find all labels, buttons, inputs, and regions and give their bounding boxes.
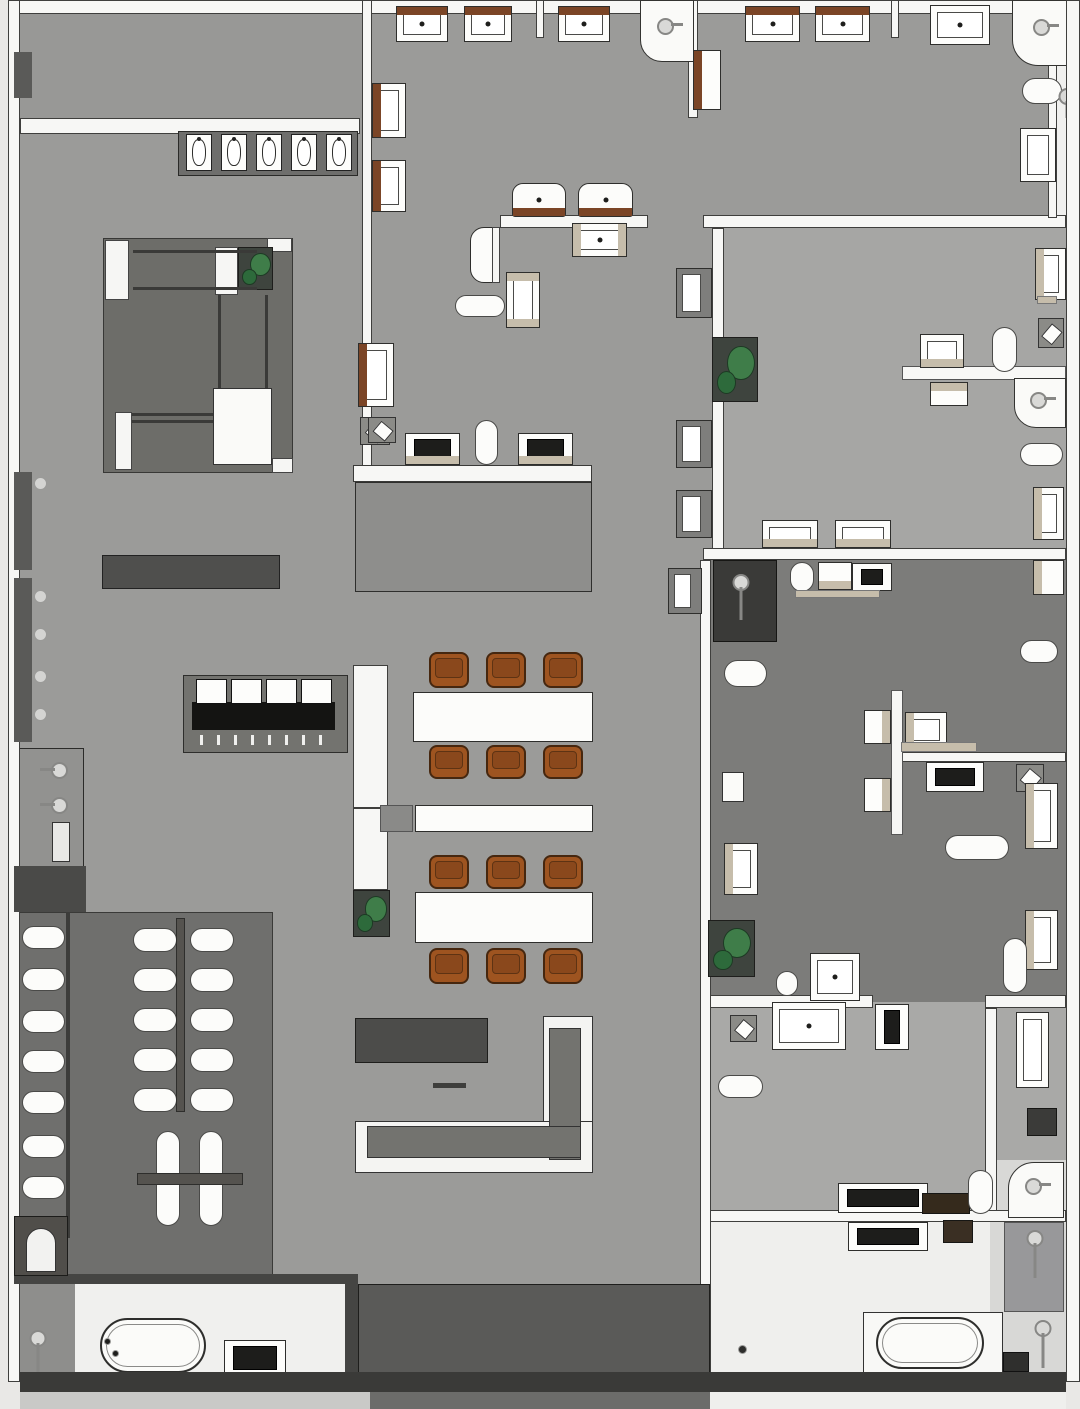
plant-leaf xyxy=(713,950,733,971)
dark-top xyxy=(861,569,883,585)
spa-bowl xyxy=(1038,318,1064,348)
floor-bottom-right xyxy=(710,1392,1066,1409)
treatment-bed xyxy=(1025,783,1058,849)
lounger xyxy=(22,1176,65,1199)
stool-dark xyxy=(943,1220,973,1243)
dining-chair xyxy=(429,855,469,889)
accent-bar xyxy=(513,208,565,216)
tap xyxy=(197,137,201,141)
cushion xyxy=(492,658,520,678)
accent-bar xyxy=(694,51,702,109)
styling-station xyxy=(358,343,394,407)
chair xyxy=(682,496,701,532)
console-table xyxy=(355,1018,488,1063)
bed xyxy=(1020,443,1063,466)
lounger xyxy=(190,928,234,952)
styling-station xyxy=(372,160,406,212)
wall-innerroom-right xyxy=(898,752,1066,762)
wall-bath-divider xyxy=(345,1283,358,1378)
accent-bar xyxy=(819,581,851,589)
column-left-1 xyxy=(14,52,32,98)
basin xyxy=(332,139,346,166)
accent-bar xyxy=(465,7,511,15)
desk-chair xyxy=(930,382,968,406)
knob xyxy=(807,1024,812,1029)
lounger xyxy=(22,1091,65,1114)
treatment-bed xyxy=(1033,560,1064,595)
sofa-module xyxy=(105,240,129,300)
accent-bar xyxy=(559,7,609,15)
dining-chair xyxy=(486,745,526,779)
lounger xyxy=(190,1088,234,1112)
vanity xyxy=(848,1222,928,1251)
dining-chair xyxy=(543,948,583,984)
fixture-head xyxy=(1030,392,1047,409)
diamond-glyph xyxy=(372,420,393,441)
chair xyxy=(674,574,691,608)
cushion xyxy=(435,861,463,879)
basin xyxy=(297,139,311,166)
fixture-arm xyxy=(1042,1333,1045,1368)
accent-bar xyxy=(1026,911,1034,969)
bathtub xyxy=(100,1318,206,1373)
accent-bar xyxy=(882,711,890,743)
mirror xyxy=(1023,1019,1042,1081)
mirror xyxy=(927,341,957,361)
accent-bar xyxy=(1036,249,1044,299)
fixture-arm xyxy=(40,803,55,806)
fixture-arm xyxy=(671,23,683,26)
control-panel xyxy=(52,822,70,862)
wall-station xyxy=(676,268,712,318)
wash-chair xyxy=(578,183,633,217)
lounge-chair xyxy=(724,843,758,895)
mirror xyxy=(1042,255,1059,293)
reception-counter xyxy=(102,555,280,589)
mat-dark xyxy=(1003,1352,1029,1372)
sink-unit xyxy=(506,272,540,328)
accent-bar xyxy=(1034,561,1042,594)
knob xyxy=(770,22,775,27)
shower-head xyxy=(40,795,68,817)
wall-divider-top-1 xyxy=(536,0,544,38)
shower-head xyxy=(728,574,754,620)
bed xyxy=(992,327,1017,372)
lounger xyxy=(190,1048,234,1072)
accent-bar xyxy=(816,7,869,15)
dining-chair xyxy=(543,855,583,889)
wash-chair xyxy=(512,183,566,217)
desk-station xyxy=(518,433,573,465)
mirror xyxy=(1032,917,1051,963)
dark-top xyxy=(857,1228,919,1245)
plant-box xyxy=(238,247,273,290)
toilet xyxy=(1014,378,1066,428)
mirror xyxy=(912,719,940,741)
lounger-rail xyxy=(176,918,185,1112)
lounger xyxy=(133,968,177,992)
coffee-table xyxy=(213,388,272,465)
wall-lamp xyxy=(34,708,47,721)
stage-platform xyxy=(358,1284,710,1376)
bed xyxy=(790,562,814,592)
chair xyxy=(682,274,701,312)
accent-bar xyxy=(882,779,890,811)
sofa-back-line xyxy=(133,287,257,290)
manicure-seat xyxy=(301,679,332,704)
accent-bar xyxy=(763,539,817,547)
manicure-counter xyxy=(192,702,335,730)
treatment-bed xyxy=(1033,487,1064,540)
knob xyxy=(537,198,542,203)
styling-station xyxy=(464,6,512,42)
lounger xyxy=(133,1008,177,1032)
mirror xyxy=(365,350,387,400)
desk-divider xyxy=(891,690,903,835)
treatment-bed xyxy=(1025,910,1058,970)
basin xyxy=(262,139,276,166)
lounger xyxy=(22,1135,65,1158)
treatment-bed xyxy=(772,1002,846,1050)
desk-chair xyxy=(835,520,891,548)
cabinet xyxy=(875,1004,909,1050)
wall-divider-top-2 xyxy=(891,0,899,38)
sofa-module xyxy=(115,412,132,470)
desk-station xyxy=(405,433,460,465)
dark-top xyxy=(884,1010,900,1044)
knob xyxy=(833,975,838,980)
mirror-cabinet xyxy=(930,5,990,45)
dark-top xyxy=(935,768,975,786)
basin xyxy=(227,139,241,166)
knob xyxy=(486,22,491,27)
sofa-back-line xyxy=(133,250,257,253)
desk-chair xyxy=(762,520,818,548)
sofa-module xyxy=(272,458,293,473)
knob xyxy=(597,238,602,243)
plant-leaf xyxy=(357,914,373,931)
accent-bar xyxy=(397,7,447,15)
dining-chair xyxy=(486,948,526,984)
cabinet xyxy=(1020,128,1056,182)
fixture-head xyxy=(1025,1178,1042,1195)
fixture-arm xyxy=(1047,24,1059,27)
styling-station xyxy=(372,83,406,138)
knob xyxy=(582,22,587,27)
lounger-rail xyxy=(137,1173,243,1185)
tap xyxy=(337,137,341,141)
pedicure-sink xyxy=(291,134,317,171)
tap xyxy=(267,137,271,141)
lounger xyxy=(22,1050,65,1073)
accent-bar xyxy=(725,844,733,894)
bed xyxy=(724,660,767,687)
mirror xyxy=(731,850,751,888)
side-table-dark xyxy=(1027,1108,1057,1136)
door-arch xyxy=(26,1228,56,1272)
fixture-arm xyxy=(40,768,55,771)
styling-station xyxy=(558,6,610,42)
wall-chevron-top-b xyxy=(985,995,1066,1008)
bar-counter-horizontal xyxy=(367,1126,581,1158)
mirror xyxy=(1032,790,1051,842)
cushion xyxy=(435,954,463,974)
wall-lamp xyxy=(34,590,47,603)
wall-woodroom-bottom xyxy=(703,548,1066,560)
cabinet-small xyxy=(722,772,744,802)
column-left-3 xyxy=(14,578,32,742)
mirror xyxy=(1040,494,1057,533)
vanity xyxy=(838,1183,928,1213)
shower-head xyxy=(40,760,68,782)
fixture-arm xyxy=(1044,397,1056,400)
accent-bar xyxy=(406,456,459,464)
pedicure-sink xyxy=(256,134,282,171)
platform-room xyxy=(355,482,592,592)
bed xyxy=(968,1170,993,1214)
cushion xyxy=(492,751,520,769)
basin xyxy=(192,139,206,166)
plant-box xyxy=(353,890,390,937)
towel-roll xyxy=(455,295,505,317)
accent-bar xyxy=(507,273,539,281)
dining-table-narrow xyxy=(415,805,593,832)
desk xyxy=(852,563,892,591)
lounger xyxy=(22,926,65,949)
accent-bar xyxy=(746,7,799,15)
manicure-seat xyxy=(266,679,297,704)
cushion xyxy=(435,751,463,769)
drain xyxy=(738,1345,747,1354)
wall-lamp xyxy=(34,628,47,641)
bed xyxy=(718,1075,763,1098)
styling-station xyxy=(815,6,870,42)
cushion xyxy=(549,658,577,678)
dining-table xyxy=(413,692,593,742)
shower-head xyxy=(26,1330,50,1376)
tap xyxy=(302,137,306,141)
fixture-head xyxy=(1033,19,1050,36)
desk-surface xyxy=(901,742,977,752)
desk-chair xyxy=(864,778,891,812)
knob xyxy=(420,22,425,27)
dining-chair xyxy=(429,745,469,779)
treatment-bed xyxy=(1035,248,1066,300)
floor-bottom-left xyxy=(20,1392,370,1409)
accent-bar xyxy=(519,456,572,464)
shower-head xyxy=(1030,1320,1056,1368)
sink-unit xyxy=(572,223,627,257)
desk-chair xyxy=(920,334,964,368)
accent-bar xyxy=(931,383,967,391)
manicure-seat xyxy=(196,679,227,704)
tap xyxy=(232,137,236,141)
stool-dark xyxy=(922,1193,970,1214)
floor-plan-canvas xyxy=(0,0,1080,1409)
bed xyxy=(1020,640,1058,663)
knob xyxy=(603,198,608,203)
wall-lamp xyxy=(34,670,47,683)
bed xyxy=(945,835,1009,860)
plant-box xyxy=(712,337,758,402)
dining-table xyxy=(415,892,593,943)
stool-row xyxy=(200,735,332,745)
lounger xyxy=(22,968,65,991)
cushion xyxy=(549,954,577,974)
fixture-arm xyxy=(1039,1183,1051,1186)
chair xyxy=(682,426,701,462)
dining-chair xyxy=(486,652,526,688)
mat-line xyxy=(433,1083,466,1088)
desk-chair xyxy=(864,710,891,744)
cushion xyxy=(435,658,463,678)
tap xyxy=(112,1350,119,1357)
wall-station xyxy=(668,568,702,614)
mirror xyxy=(379,167,399,205)
cushion xyxy=(492,861,520,879)
wall-lamp xyxy=(34,477,47,490)
bed xyxy=(776,971,798,996)
lounger xyxy=(190,1008,234,1032)
dining-chair xyxy=(486,855,526,889)
treatment-bed xyxy=(1016,1012,1049,1088)
wall-station xyxy=(676,490,712,538)
cushion xyxy=(549,861,577,879)
counter-dining-mid xyxy=(380,805,413,832)
floor-wood-room xyxy=(712,222,1066,558)
spa-bowl xyxy=(730,1015,757,1042)
diamond-glyph xyxy=(1041,323,1063,345)
accent-bar xyxy=(618,224,626,256)
platform-shelf xyxy=(353,465,592,482)
plant-leaf xyxy=(717,371,737,394)
accent-bar xyxy=(836,539,890,547)
accent-bar xyxy=(373,84,381,137)
fixture-arm xyxy=(740,587,743,620)
dark-top xyxy=(847,1189,919,1207)
manicure-seat xyxy=(231,679,262,704)
towel-box xyxy=(368,417,396,443)
accent-bar xyxy=(921,359,963,367)
wall-right xyxy=(1066,0,1080,1382)
wall-top xyxy=(8,0,1080,14)
lounger xyxy=(133,1048,177,1072)
column-left-2 xyxy=(14,472,32,570)
diamond-glyph xyxy=(734,1019,755,1040)
vanity xyxy=(224,1340,286,1376)
bathtub xyxy=(876,1317,984,1369)
dark-top xyxy=(233,1346,277,1370)
tap xyxy=(104,1338,111,1345)
plant-box xyxy=(708,920,755,977)
styling-station xyxy=(745,6,800,42)
accent-bar xyxy=(1034,488,1042,539)
lounger xyxy=(190,968,234,992)
cushion xyxy=(549,751,577,769)
fixture-arm xyxy=(1034,1243,1037,1278)
mirror xyxy=(1027,135,1049,175)
floor-bottom-center xyxy=(370,1392,710,1409)
shower-arch xyxy=(1008,1162,1064,1218)
knob xyxy=(958,23,963,28)
shower-stall xyxy=(640,0,694,62)
bed xyxy=(1003,938,1027,993)
wall-station xyxy=(676,420,712,468)
mirror xyxy=(379,90,399,131)
dining-chair xyxy=(543,652,583,688)
styling-station xyxy=(693,50,721,110)
treatment-bed xyxy=(810,953,860,1001)
block-below-wash xyxy=(14,866,86,912)
wall-counter-dining-a xyxy=(353,665,388,808)
dining-chair xyxy=(429,652,469,688)
dining-chair xyxy=(543,745,583,779)
floor-room-topleft xyxy=(20,14,362,118)
panel xyxy=(492,227,500,283)
pedicure-sink xyxy=(326,134,352,171)
desk-surface xyxy=(795,590,880,598)
fixture-head xyxy=(657,18,674,35)
pedicure-sink xyxy=(186,134,212,171)
accent-bar xyxy=(507,319,539,327)
lounger xyxy=(22,1010,65,1033)
knob xyxy=(840,22,845,27)
accent-bar xyxy=(373,161,381,211)
dining-chair xyxy=(429,948,469,984)
accent-bar xyxy=(579,208,632,216)
lounger xyxy=(133,928,177,952)
cushion xyxy=(492,954,520,974)
door-arch xyxy=(475,420,498,465)
shower-head xyxy=(1022,1230,1048,1278)
accent-bar xyxy=(573,224,581,256)
cabinet xyxy=(926,762,984,792)
step xyxy=(1037,296,1057,304)
bottom-band xyxy=(20,1372,1066,1392)
accent-bar xyxy=(1026,784,1034,848)
accent-bar xyxy=(359,344,367,406)
wall-woodroom-top xyxy=(703,215,1066,228)
lounger xyxy=(133,1088,177,1112)
pedicure-sink xyxy=(221,134,247,171)
desk-chair xyxy=(818,562,852,590)
plant-leaf xyxy=(242,269,257,285)
mirror xyxy=(513,279,533,321)
styling-station xyxy=(396,6,448,42)
divider-lounge-left xyxy=(66,912,70,1238)
